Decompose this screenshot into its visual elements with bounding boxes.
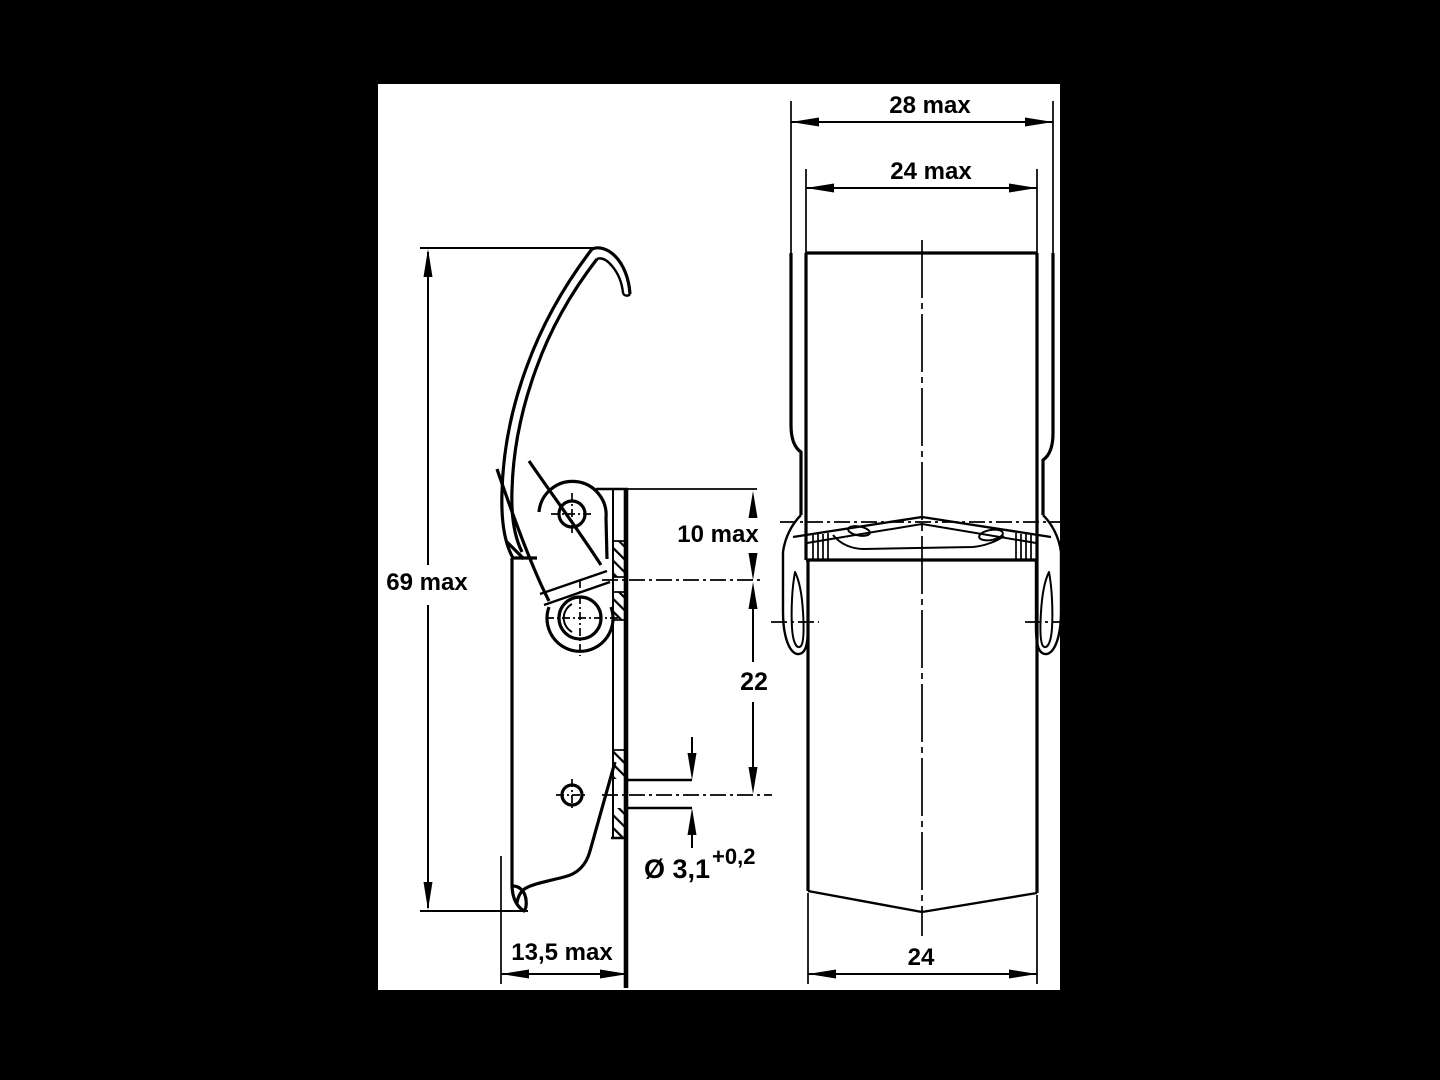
dim-hole-tolerance-label: +0,2 [712, 844, 755, 869]
dim-side-height-label: 69 max [386, 569, 468, 596]
dim-slot-distance-label: 22 [740, 668, 768, 696]
dim-plate-top-to-slot-label: 10 max [677, 521, 759, 548]
technical-drawing: 69 max 10 max 22 Ø 3,1 +0,2 13,5 max [0, 0, 1440, 1080]
dim-hole-diameter-label: Ø 3,1 [644, 854, 710, 884]
dim-front-width-inner-label: 24 max [890, 158, 972, 185]
dim-side-depth-label: 13,5 max [511, 939, 613, 966]
dim-front-width-base-label: 24 [908, 944, 935, 971]
screenshot-stage: 69 max 10 max 22 Ø 3,1 +0,2 13,5 max [0, 0, 1440, 1080]
dim-front-width-outer-label: 28 max [889, 92, 971, 119]
